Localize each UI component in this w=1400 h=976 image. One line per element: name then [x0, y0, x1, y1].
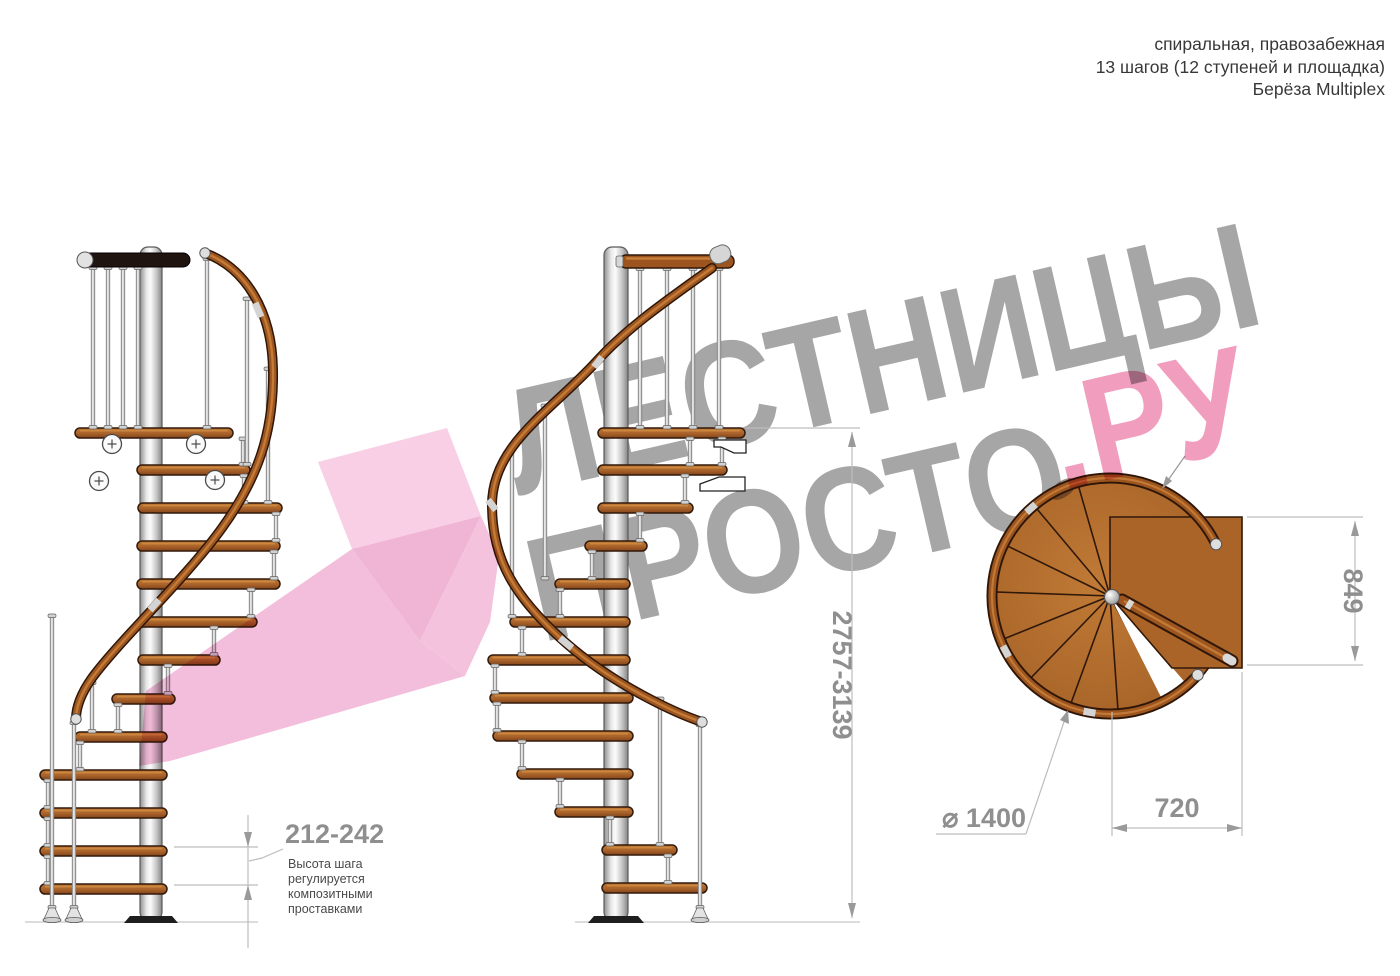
mount-bracket: [714, 440, 746, 453]
baluster: [666, 855, 670, 883]
baluster: [495, 703, 499, 731]
tread: [138, 617, 257, 627]
baluster-cap: [541, 577, 549, 581]
tread: [137, 465, 250, 475]
handrail-end-cap: [71, 714, 81, 724]
baluster-cap: [247, 615, 255, 619]
side-view-elevation-2: [488, 243, 860, 923]
note-line: Высота шага: [288, 857, 363, 871]
baluster-cap: [664, 881, 672, 885]
baluster: [46, 818, 50, 846]
leader-line: [249, 849, 283, 861]
baluster-cap: [518, 653, 526, 657]
baluster-cap: [508, 615, 516, 619]
handrail-end-cap: [200, 248, 210, 258]
baluster: [121, 267, 125, 428]
tread: [75, 732, 167, 742]
baluster-cap: [247, 588, 255, 592]
handrail-connector: [1084, 711, 1096, 713]
baluster: [249, 589, 253, 617]
baluster-cap: [689, 426, 697, 430]
handrail-end-cap: [1192, 669, 1203, 680]
tread: [598, 503, 693, 513]
baluster-cap: [686, 437, 694, 441]
baluster: [205, 258, 209, 428]
tread: [137, 579, 280, 589]
tread: [488, 655, 630, 665]
baluster: [90, 682, 94, 732]
baluster: [543, 405, 547, 579]
baluster-cap: [636, 539, 644, 543]
arrowhead: [1227, 824, 1242, 832]
baluster-cap: [636, 426, 644, 430]
baluster: [683, 475, 687, 503]
baluster-cap: [518, 740, 526, 744]
handrail-connector: [560, 638, 572, 648]
tread: [490, 693, 633, 703]
note-line: проставками: [288, 902, 362, 916]
arrowhead: [1112, 824, 1127, 832]
handrail-end-cap: [697, 717, 707, 727]
handrail-connector: [1003, 646, 1009, 657]
baluster-cap: [588, 577, 596, 581]
baluster-foot-base: [691, 917, 709, 922]
title-block: спиральная, правозабежная 13 шагов (12 с…: [1096, 33, 1385, 101]
tread: [510, 617, 630, 627]
pole-top-sphere: [1105, 590, 1120, 605]
baluster: [166, 665, 170, 694]
tread: [112, 694, 175, 704]
baluster-cap: [76, 741, 84, 745]
baluster-cap: [203, 426, 211, 430]
baluster-cap: [656, 843, 664, 847]
arrowhead: [848, 903, 856, 918]
baluster: [698, 724, 702, 908]
baluster-cap: [272, 512, 280, 516]
baluster: [665, 268, 669, 428]
tread: [75, 428, 233, 438]
baluster: [91, 267, 95, 428]
baluster-cap: [518, 626, 526, 630]
arrowhead: [1351, 646, 1359, 661]
tread: [138, 503, 282, 513]
baluster-cap: [663, 426, 671, 430]
baluster-cap: [243, 463, 251, 467]
baluster: [520, 741, 524, 769]
baluster-foot-base: [65, 917, 83, 922]
baluster-cap: [664, 854, 672, 858]
baluster: [116, 704, 120, 732]
tread: [598, 428, 745, 438]
center-rail-cap: [1227, 658, 1232, 661]
dim-step-height-label: 212-242: [285, 819, 384, 849]
pole-base-flange: [124, 916, 178, 923]
baluster: [136, 267, 140, 428]
handrail-end-cap: [1210, 539, 1221, 550]
baluster-cap: [718, 463, 726, 467]
baluster-cap: [636, 512, 644, 516]
tread: [138, 655, 220, 665]
drawing-sheet: ЛЕСТНИЦЫ ПРОСТО: [0, 0, 1400, 976]
dim-platform-width-label: 720: [1154, 793, 1199, 823]
baluster: [212, 627, 216, 655]
top-plan-view: [988, 474, 1242, 718]
title-line-steps: 13 шагов (12 ступеней и площадка): [1096, 56, 1385, 79]
tread: [555, 579, 630, 589]
tread: [585, 541, 647, 551]
baluster-cap: [76, 768, 84, 772]
baluster-cap: [264, 501, 272, 505]
dim-total-height-label: 2757-3139: [827, 610, 857, 739]
baluster-cap: [104, 426, 112, 430]
baluster-cap: [686, 463, 694, 467]
note-line: регулируется: [288, 872, 365, 886]
tread: [602, 883, 707, 893]
baluster: [106, 267, 110, 428]
baluster: [638, 268, 642, 428]
baluster: [608, 817, 612, 845]
baluster-cap: [556, 778, 564, 782]
baluster-cap: [210, 626, 218, 630]
baluster: [46, 856, 50, 884]
tread: [517, 769, 633, 779]
baluster: [245, 298, 249, 465]
tread: [602, 845, 677, 855]
baluster-cap: [270, 550, 278, 554]
baluster: [50, 615, 54, 908]
dim-platform-depth-label: 849: [1338, 568, 1368, 613]
handrail-end-cap: [616, 256, 623, 267]
tread: [40, 884, 167, 894]
baluster: [558, 779, 562, 807]
baluster-cap: [89, 426, 97, 430]
leader-line-diameter: [1026, 716, 1066, 834]
side-view-elevation-1: [25, 247, 282, 923]
baluster: [46, 780, 50, 808]
baluster: [520, 627, 524, 655]
baluster-cap: [681, 501, 689, 505]
arrowhead: [1060, 710, 1069, 724]
baluster-cap: [164, 664, 172, 668]
center-rail-connector: [1127, 603, 1132, 606]
baluster-cap: [114, 730, 122, 734]
baluster-cap: [134, 426, 142, 430]
mount-bracket: [700, 477, 745, 491]
arrowhead: [244, 832, 252, 847]
baluster: [72, 722, 76, 908]
handrail-end-cap: [77, 252, 93, 268]
arrowhead: [1351, 521, 1359, 536]
baluster-cap: [681, 474, 689, 478]
tread: [40, 770, 167, 780]
arrowhead: [848, 432, 856, 447]
baluster: [241, 438, 245, 465]
baluster-cap: [48, 614, 56, 618]
baluster: [688, 438, 692, 465]
baluster-cap: [606, 816, 614, 820]
baluster-cap: [491, 691, 499, 695]
baluster: [272, 551, 276, 579]
note-line: композитными: [288, 887, 373, 901]
baluster-cap: [272, 539, 280, 543]
title-line-type: спиральная, правозабежная: [1096, 33, 1385, 56]
baluster-cap: [518, 767, 526, 771]
platform-handrail-dark: [78, 253, 190, 267]
baluster-cap: [715, 426, 723, 430]
tread: [40, 846, 167, 856]
baluster-cap: [270, 577, 278, 581]
baluster: [274, 513, 278, 541]
baluster: [590, 551, 594, 579]
baluster-cap: [88, 730, 96, 734]
tread: [555, 807, 633, 817]
tread: [493, 731, 633, 741]
tread: [598, 465, 727, 475]
baluster-cap: [588, 550, 596, 554]
baluster-cap: [491, 664, 499, 668]
baluster-cap: [210, 653, 218, 657]
baluster: [717, 268, 721, 428]
baluster: [638, 513, 642, 541]
baluster: [691, 268, 695, 428]
pole-base-flange: [588, 916, 644, 923]
baluster-cap: [119, 426, 127, 430]
baluster-foot-base: [43, 917, 61, 922]
step-height-note: Высота шага регулируется композитными пр…: [288, 857, 373, 916]
dim-diameter-label: ⌀ 1400: [942, 803, 1026, 833]
baluster-cap: [493, 702, 501, 706]
baluster-cap: [556, 588, 564, 592]
baluster-cap: [606, 843, 614, 847]
tread: [40, 808, 167, 818]
baluster-cap: [556, 805, 564, 809]
baluster: [78, 742, 82, 770]
baluster-cap: [556, 615, 564, 619]
baluster: [493, 665, 497, 693]
baluster-cap: [493, 729, 501, 733]
baluster: [658, 698, 662, 845]
staircase-technical-drawing: 212-242 2757-3139 849 720 ⌀ 1400 Высота …: [0, 0, 1400, 976]
arrowhead: [244, 885, 252, 900]
baluster-cap: [164, 692, 172, 696]
baluster-cap: [114, 703, 122, 707]
baluster: [558, 589, 562, 617]
title-line-material: Берёза Multiplex: [1096, 78, 1385, 101]
